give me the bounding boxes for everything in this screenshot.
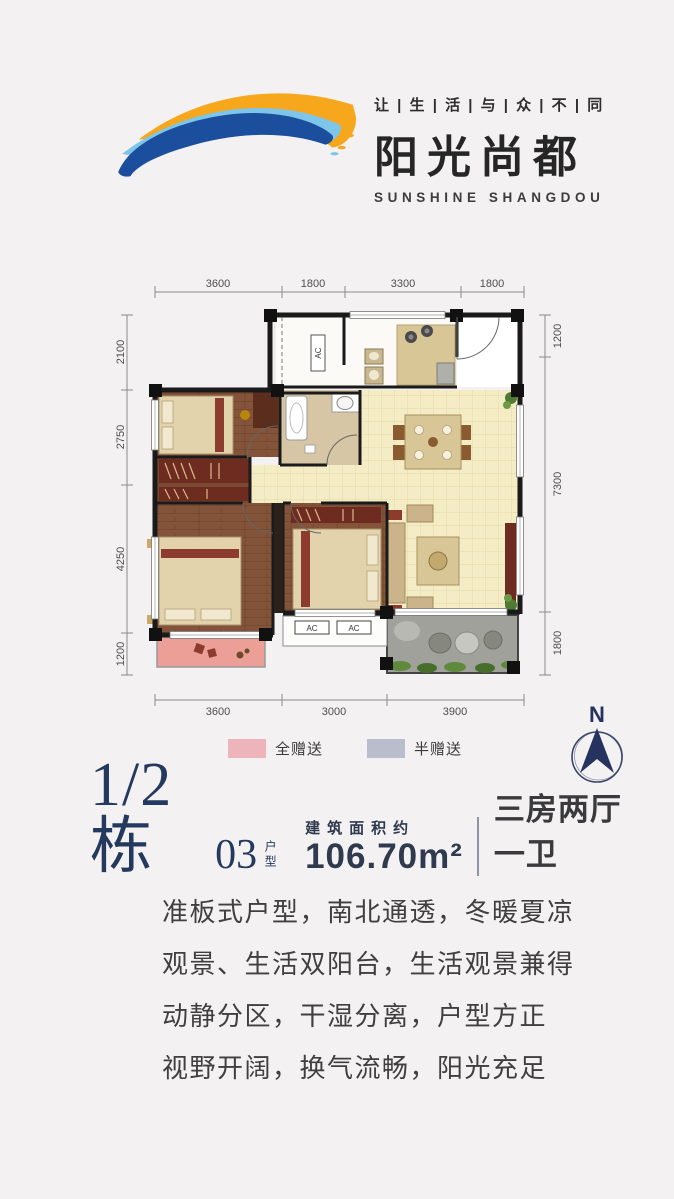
- north-arrow: N: [563, 702, 631, 790]
- brand-logo-swoosh: [108, 82, 358, 200]
- swoosh-blue-speck: [330, 152, 338, 155]
- ac-label-1: AC: [306, 624, 317, 633]
- swoosh-darkblue: [118, 113, 333, 177]
- legend-label-half-gift: 半赠送: [414, 738, 462, 759]
- dim-bottom-2: 3000: [322, 706, 346, 718]
- legend-item-full-gift: 全赠送: [228, 738, 323, 759]
- bedroom1-desk: [253, 392, 278, 428]
- bedroom1-desk-chair: [240, 410, 250, 420]
- brand-tagline: 让 | 生 | 活 | 与 | 众 | 不 | 同: [374, 94, 584, 115]
- ac-label-2: AC: [348, 624, 359, 633]
- north-label: N: [589, 702, 605, 727]
- dimension-chain-right: [539, 315, 551, 675]
- unit-title-row: 1/2栋 03 户型 建筑面积约 106.70m² 三房两厅一卫: [90, 790, 650, 878]
- area-value: 106.70m²: [305, 838, 463, 876]
- bed-bedroom2: [147, 537, 241, 625]
- unit-layout: 三房两厅一卫: [494, 784, 650, 874]
- bed-bedroom3: [293, 529, 381, 609]
- description-line-1: 准板式户型，南北通透，冬暖夏凉: [162, 886, 575, 938]
- entry-floor: [457, 317, 518, 387]
- dimension-chain-bottom: [155, 694, 524, 706]
- dim-top-1: 3600: [206, 278, 230, 290]
- dining-set: [393, 415, 471, 469]
- unit-type-label: 户型: [262, 840, 279, 872]
- unit-number: 03: [215, 834, 257, 876]
- description-line-3: 动静分区，干湿分离，户型方正: [162, 990, 575, 1042]
- dim-right-3: 1800: [552, 631, 564, 655]
- dim-left-2: 2750: [115, 425, 127, 449]
- dim-top-3: 3300: [391, 278, 415, 290]
- description-line-2: 观景、生活双阳台，生活观景兼得: [162, 938, 575, 990]
- dim-right-2: 7300: [552, 472, 564, 496]
- swoosh-orange-speck: [338, 146, 346, 149]
- area-group: 建筑面积约 106.70m²: [305, 817, 479, 876]
- area-label: 建筑面积约: [305, 817, 463, 838]
- poster-page: 让 | 生 | 活 | 与 | 众 | 不 | 同 阳光尚都 SUNSHINE …: [0, 0, 674, 1199]
- brand-name-en: SUNSHINE SHANGDOU: [374, 190, 584, 205]
- legend-swatch-half-gift: [367, 739, 405, 758]
- description-line-4: 视野开阔，换气流畅，阳光充足: [162, 1042, 575, 1094]
- swoosh-orange-speck: [344, 133, 354, 137]
- legend-item-half-gift: 半赠送: [367, 738, 462, 759]
- legend-swatch-full-gift: [228, 739, 266, 758]
- brand-name: 阳光尚都: [374, 121, 584, 185]
- dim-left-3: 4250: [115, 547, 127, 571]
- dim-bottom-1: 3600: [206, 706, 230, 718]
- dim-bottom-3: 3900: [443, 706, 467, 718]
- ac-platform: [283, 616, 387, 646]
- dim-top-4: 1800: [480, 278, 504, 290]
- brand-text-block: 让 | 生 | 活 | 与 | 众 | 不 | 同 阳光尚都 SUNSHINE …: [374, 94, 584, 205]
- ac-label-kitchen: AC: [314, 347, 323, 358]
- dim-top-2: 1800: [301, 278, 325, 290]
- block-name: 1/2栋: [90, 754, 208, 878]
- dimension-chain-left: [121, 315, 133, 675]
- wall-fill-bedroom-divider: [274, 503, 283, 613]
- legend: 全赠送 半赠送: [228, 738, 462, 759]
- description-block: 准板式户型，南北通透，冬暖夏凉 观景、生活双阳台，生活观景兼得 动静分区，干湿分…: [162, 886, 575, 1094]
- legend-label-full-gift: 全赠送: [275, 738, 323, 759]
- floor-plan: 3600 1800 3300 1800 2100 2750 4250 1200 …: [95, 265, 575, 720]
- bed-bedroom1: [159, 396, 233, 454]
- dim-left-1: 2100: [115, 340, 127, 364]
- dim-left-4: 1200: [115, 642, 127, 666]
- dim-right-1: 1200: [552, 324, 564, 348]
